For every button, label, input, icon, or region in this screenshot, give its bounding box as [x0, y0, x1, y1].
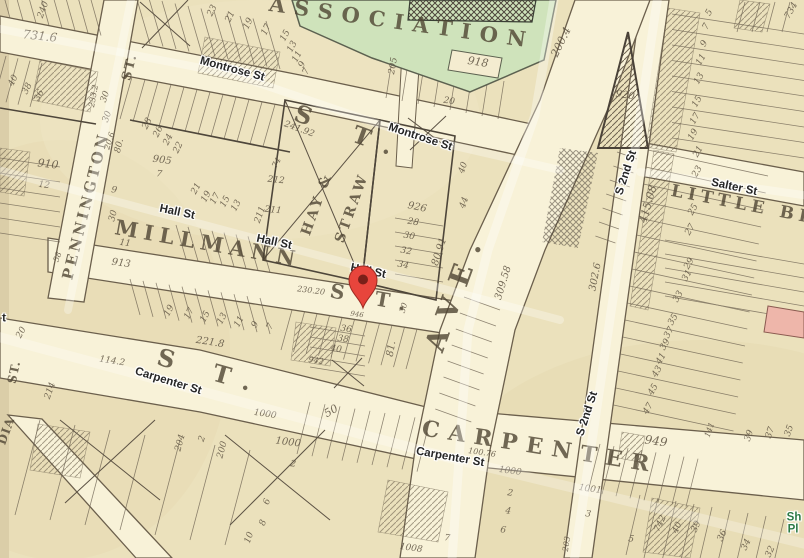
map-pin[interactable] [343, 262, 383, 312]
historic-map-canvas [0, 0, 804, 558]
association-building [408, 0, 536, 22]
pin-body[interactable] [349, 266, 377, 308]
map-viewport[interactable]: ASSOCIATIONS T.MILLMANNS T.PENNINGTONST.… [0, 0, 804, 558]
pin-hole [358, 275, 368, 285]
pink-building [764, 306, 804, 338]
atlas-page-edge [0, 0, 9, 558]
